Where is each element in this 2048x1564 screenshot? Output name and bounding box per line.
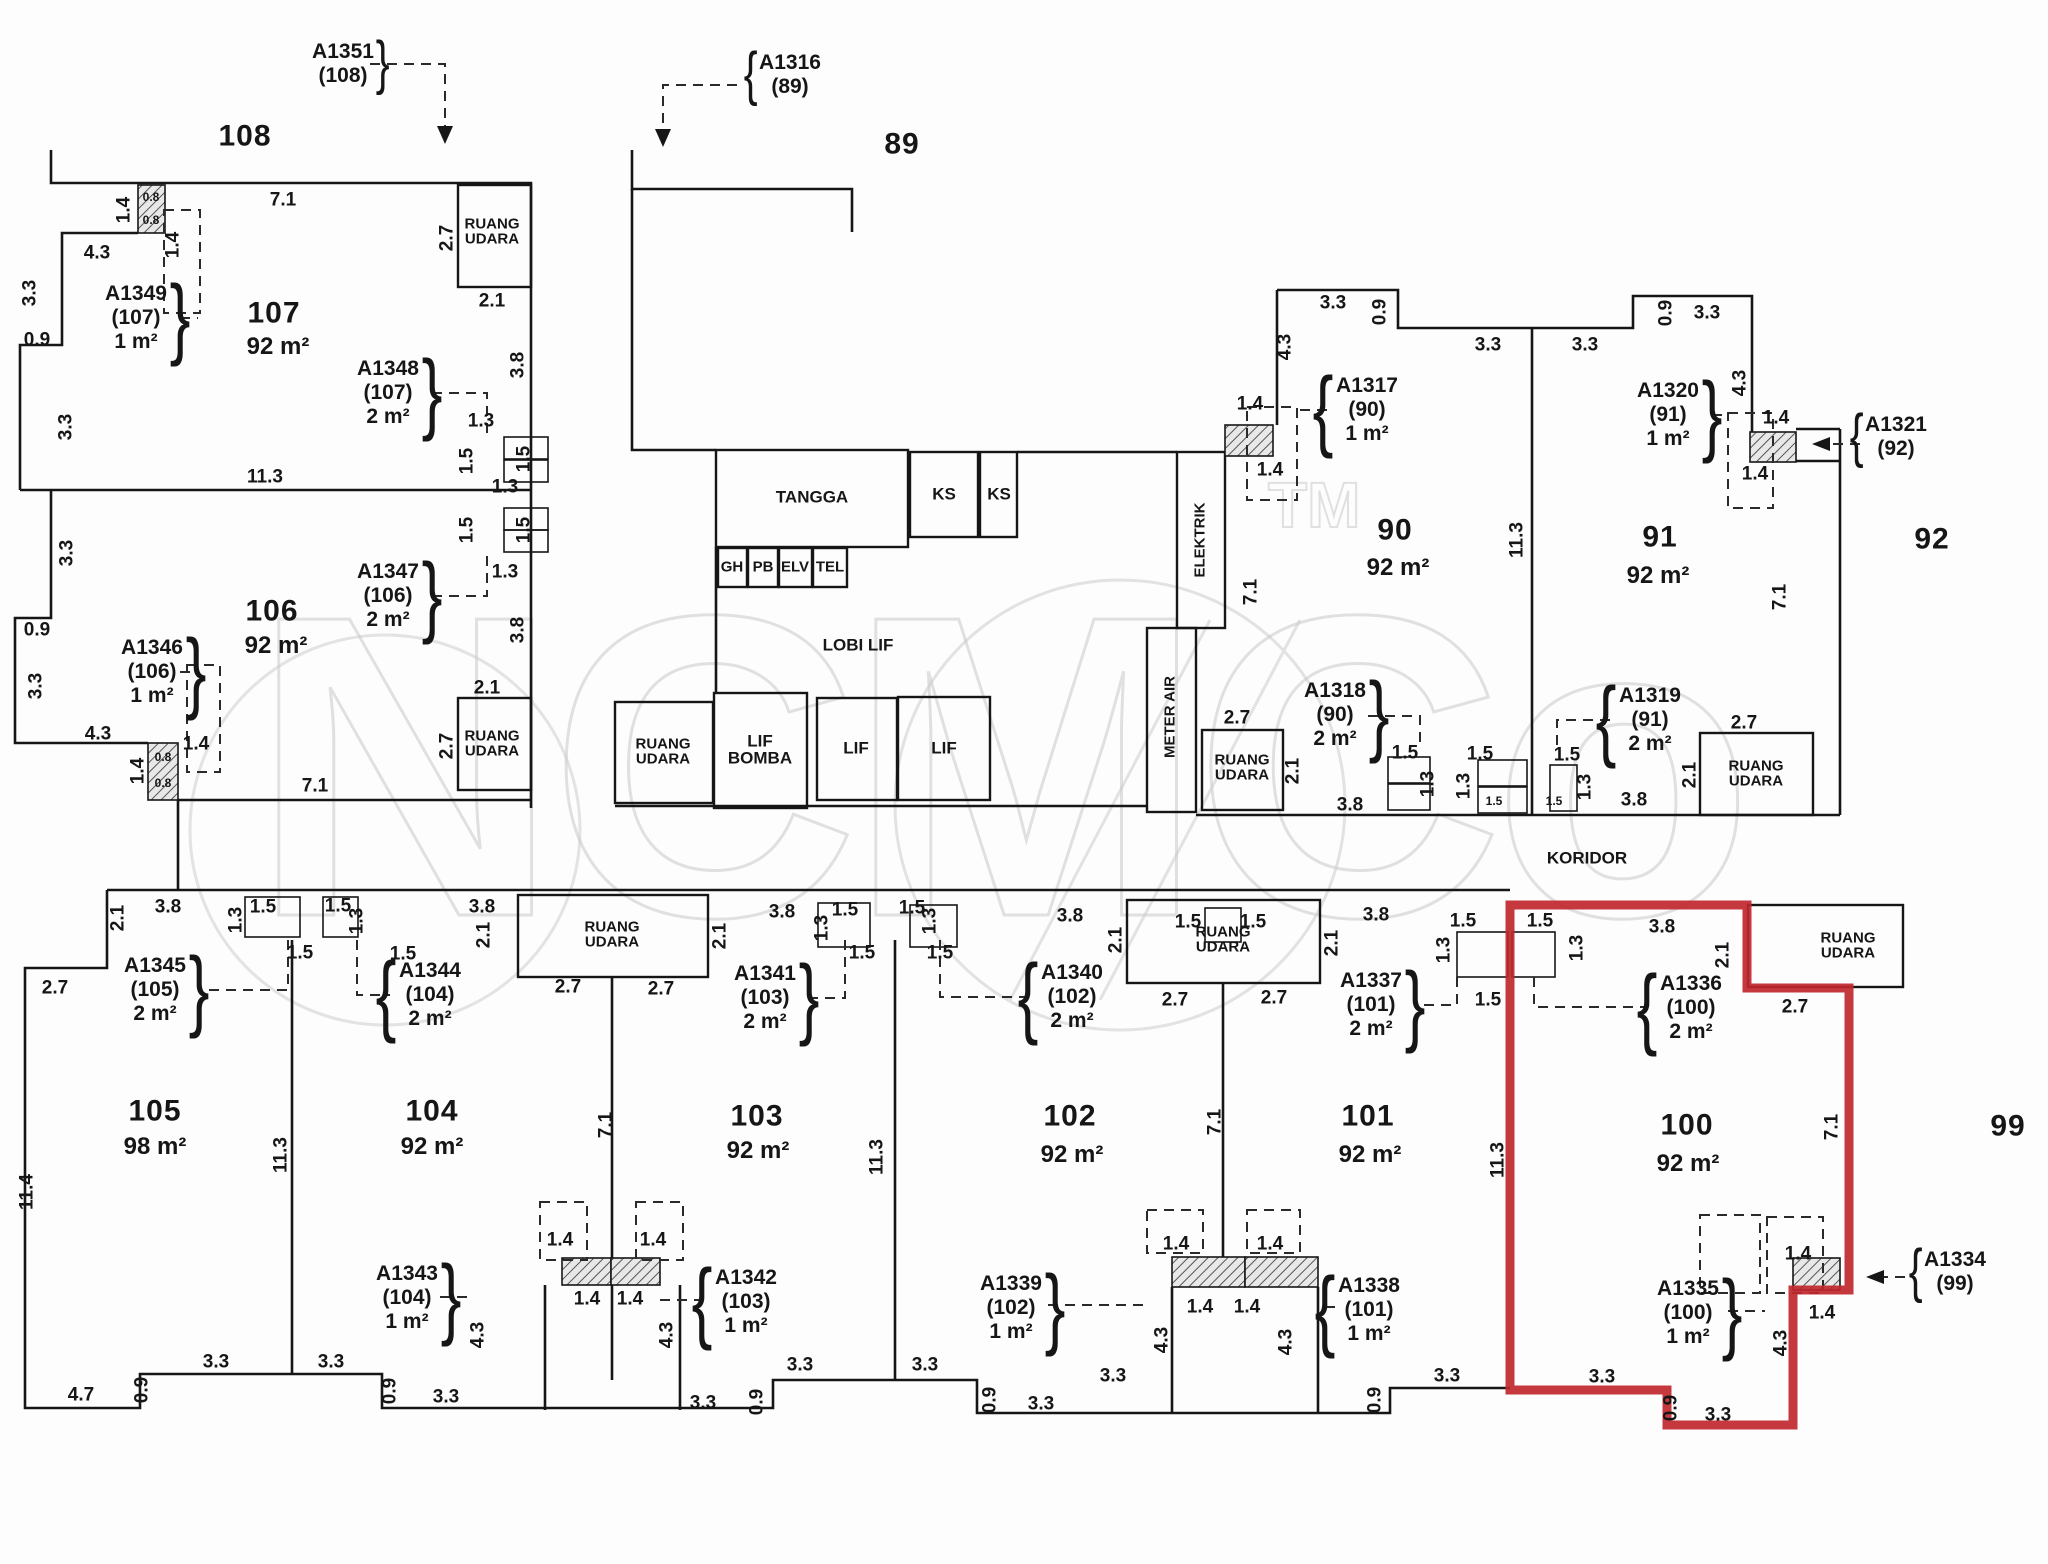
dim-label: 0.8 [143,214,160,226]
dim-label: 1.5 [457,448,476,474]
room-label-ks: KS [932,485,956,502]
dim-label: 1.5 [1175,912,1201,931]
room-label-line: UDARA [1821,945,1875,962]
dim-label: 1.5 [1467,744,1493,763]
callout-A1320: A1320(91)1 m²} [1637,379,1699,451]
dim-label: 1.3 [1575,774,1594,800]
room-label-elektrik: ELEKTRIK [1192,503,1207,578]
dim-label: 0.9 [1661,1395,1680,1421]
room-label-meter-air: METER AIR [1162,676,1177,758]
callout-text: (106) [357,584,419,608]
callout-text: 1 m² [121,684,183,708]
unit-area-107: 92 m² [247,335,310,359]
callout-brace: { [1908,1238,1922,1307]
unit-area-91: 92 m² [1627,564,1690,588]
dim-label: 2.7 [1782,997,1808,1016]
callout-text: (101) [1338,1298,1400,1322]
callout-A1348: A1348(107)2 m²} [357,357,419,429]
dim-label: 3.8 [1363,905,1389,924]
room-label-ruang-udara: RUANGUDARA [1821,931,1876,962]
unit-area-106: 92 m² [245,634,308,658]
room-label-line: PB [753,558,774,575]
dim-label: 11.3 [1507,522,1526,558]
callout-A1340: A1340(102)2 m²{ [1041,961,1103,1033]
dim-label: 0.9 [1656,300,1675,326]
callout-brace: } [376,30,390,99]
dim-label: 1.4 [114,197,133,223]
dim-label: 1.5 [1450,911,1476,930]
callout-brace: } [1405,953,1426,1056]
dim-label: 3.8 [1057,906,1083,925]
callout-text: 2 m² [1660,1020,1722,1044]
callout-A1334: A1334(99){ [1924,1248,1986,1296]
callout-text: (103) [715,1290,777,1314]
callout-A1318: A1318(90)2 m²} [1304,679,1366,751]
dim-label: 3.3 [56,414,75,440]
callout-A1316: A1316(89){ [759,51,821,99]
dim-label: 3.3 [26,673,45,699]
callout-text: (105) [124,978,186,1002]
room-label-lif: LIF [931,739,957,756]
callout-text: 2 m² [357,608,419,632]
room-label-line: UDARA [465,231,519,248]
dim-label: 1.5 [1486,795,1503,807]
callout-A1345: A1345(105)2 m²} [124,954,186,1026]
dim-label: 1.5 [390,944,416,963]
callout-text: (107) [105,306,167,330]
callout-brace: { [1018,945,1039,1048]
callout-text: A1319 [1619,684,1681,708]
dim-label: 3.3 [1434,1366,1460,1385]
dim-label: 1.4 [1187,1297,1213,1316]
unit-label-99: 99 [1990,1112,2025,1143]
callout-A1349: A1349(107)1 m²} [105,282,167,354]
dim-label: 1.5 [832,900,858,919]
unit-area-100: 92 m² [1657,1152,1720,1176]
room-label-elv: ELV [781,559,809,574]
unit-label-102: 102 [1043,1102,1096,1133]
callout-brace: } [799,946,820,1049]
callout-text: (104) [376,1286,438,1310]
callout-text: (107) [357,381,419,405]
callout-text: A1316 [759,51,821,75]
room-label-line: UDARA [585,934,639,951]
room-label-ruang-udara: RUANGUDARA [636,737,691,768]
dim-label: 0.9 [380,1378,399,1404]
dim-label: 1.5 [287,943,313,962]
callout-text: (103) [734,986,796,1010]
room-label-line: LIF [843,738,869,757]
dim-label: 11.4 [17,1174,36,1210]
callout-text: A1317 [1336,374,1398,398]
dim-label: 3.3 [433,1387,459,1406]
callout-text: 2 m² [124,1002,186,1026]
dim-label: 1.5 [514,446,533,472]
callout-text: (100) [1657,1301,1719,1325]
callout-text: (91) [1619,708,1681,732]
dim-label: 2.7 [648,979,674,998]
callout-brace: } [1369,663,1390,766]
dim-label: 0.9 [1365,1387,1384,1413]
callout-text: (91) [1637,403,1699,427]
room-label-line: GH [721,558,744,575]
dim-label: 1.5 [1554,745,1580,764]
dim-label: 1.4 [1785,1244,1811,1263]
room-label-line: ELEKTRIK [1191,503,1208,578]
callout-text: 2 m² [1041,1009,1103,1033]
room-label-line: UDARA [1729,773,1783,790]
unit-label-89: 89 [884,130,919,161]
dim-label: 3.3 [690,1393,716,1412]
dim-label: 4.3 [1276,1329,1295,1355]
callout-text: A1318 [1304,679,1366,703]
callout-brace: } [1045,1256,1066,1359]
callout-text: 1 m² [715,1314,777,1338]
dim-label: 1.4 [547,1230,573,1249]
room-label-line: LIF [747,732,773,751]
dim-label: 4.3 [657,1322,676,1348]
unit-label-101: 101 [1341,1102,1394,1133]
dim-label: 0.8 [155,777,172,789]
dim-label: 1.5 [849,943,875,962]
callout-text: A1320 [1637,379,1699,403]
callout-A1346: A1346(106)1 m²} [121,636,183,708]
dim-label: 4.3 [1730,370,1749,396]
dim-label: 0.9 [24,330,50,349]
callout-brace: { [1849,403,1863,472]
callout-text: (102) [1041,985,1103,1009]
room-label-line: ELV [781,558,809,575]
dim-label: 0.9 [132,1377,151,1403]
callout-text: 2 m² [357,405,419,429]
dim-label: 7.1 [270,190,296,209]
callout-text: 1 m² [105,330,167,354]
dim-label: 3.3 [203,1352,229,1371]
dim-label: 2.7 [1261,988,1287,1007]
callout-brace: { [1313,358,1334,461]
dim-label: 4.3 [1275,334,1294,360]
callout-text: A1345 [124,954,186,978]
callout-text: (106) [121,660,183,684]
dim-label: 3.3 [1100,1366,1126,1385]
callout-brace: } [422,341,443,444]
room-label-tangga: TANGGA [776,488,848,505]
dim-label: 4.3 [1152,1327,1171,1353]
callout-text: A1335 [1657,1277,1719,1301]
floor-plan: NCMCo TM [0,0,2048,1564]
room-label-line: LIF [931,738,957,757]
dim-label: 7.1 [1241,579,1260,605]
dim-label: 2.7 [1224,708,1250,727]
room-label-gh: GH [721,559,744,574]
callout-text: 1 m² [980,1320,1042,1344]
room-label-lif-bomba: LIFBOMBA [728,733,792,768]
dim-label: 2.1 [1283,758,1302,784]
room-label-lobi-lif: LOBI LIF [823,636,894,653]
dim-label: 1.4 [640,1230,666,1249]
dim-label: 3.3 [1572,335,1598,354]
callout-text: 1 m² [376,1310,438,1334]
room-label-lif: LIF [843,739,869,756]
callout-A1338: A1338(101)1 m²{ [1338,1274,1400,1346]
callout-A1344: A1344(104)2 m²{ [399,959,461,1031]
callout-A1321: A1321(92){ [1865,413,1927,461]
unit-label-105: 105 [128,1097,181,1128]
unit-area-103: 92 m² [727,1139,790,1163]
callout-brace: { [1637,956,1658,1059]
dim-label: 2.1 [474,678,500,697]
callout-brace: } [1722,1261,1743,1364]
dim-label: 2.7 [42,978,68,997]
dim-label: 1.3 [1567,935,1586,961]
dim-label: 1.4 [1257,1234,1283,1253]
room-label-ruang-udara: RUANGUDARA [1729,759,1784,790]
callout-A1317: A1317(90)1 m²{ [1336,374,1398,446]
dim-label: 3.3 [912,1355,938,1374]
callout-A1347: A1347(106)2 m²} [357,560,419,632]
dim-label: 7.1 [1770,584,1789,610]
callout-brace: } [189,938,210,1041]
room-label-tel: TEL [816,559,844,574]
dim-label: 0.9 [980,1387,999,1413]
dim-label: 1.4 [1763,408,1789,427]
callout-A1341: A1341(103)2 m²} [734,962,796,1034]
dim-label: 1.5 [1546,795,1563,807]
callout-text: 2 m² [399,1007,461,1031]
dim-label: 0.8 [143,191,160,203]
room-label-ruang-udara: RUANGUDARA [465,729,520,760]
dim-label: 1.3 [812,915,831,941]
callout-A1339: A1339(102)1 m²} [980,1272,1042,1344]
dim-label: 7.1 [596,1112,615,1138]
dim-label: 1.4 [1742,464,1768,483]
unit-label-92: 92 [1914,525,1949,556]
dim-label: 1.3 [347,908,366,934]
dim-label: 3.8 [508,352,527,378]
dim-label: 2.1 [1106,927,1125,953]
dim-label: 3.3 [1028,1394,1054,1413]
dim-label: 2.7 [437,225,456,251]
room-label-ks: KS [987,485,1011,502]
callout-text: A1346 [121,636,183,660]
callout-text: 2 m² [734,1010,796,1034]
room-label-line: TEL [816,558,844,575]
dim-label: 1.3 [1454,773,1473,799]
dim-label: 2.1 [479,291,505,310]
dim-label: 1.4 [183,734,209,753]
dim-label: 0.9 [24,620,50,639]
dim-label: 1.3 [226,907,245,933]
dim-label: 1.4 [617,1289,643,1308]
callout-text: A1337 [1340,969,1402,993]
dim-label: 1.5 [250,897,276,916]
dim-label: 3.8 [769,902,795,921]
callout-A1335: A1335(100)1 m²} [1657,1277,1719,1349]
dim-label: 2.7 [1162,990,1188,1009]
dim-label: 3.8 [1337,795,1363,814]
callout-text: (99) [1924,1272,1986,1296]
dim-label: 4.3 [468,1322,487,1348]
callout-A1336: A1336(100)2 m²{ [1660,972,1722,1044]
dim-label: 1.5 [927,943,953,962]
dim-label: 2.7 [555,977,581,996]
room-label-line: KORIDOR [1547,848,1627,867]
dim-label: 1.4 [1237,394,1263,413]
callout-A1337: A1337(101)2 m²} [1340,969,1402,1041]
dim-label: 2.1 [710,923,729,949]
room-label-line: UDARA [465,743,519,760]
dim-label: 2.1 [474,922,493,948]
dim-label: 1.5 [457,517,476,543]
callout-text: (89) [759,75,821,99]
callout-text: A1340 [1041,961,1103,985]
callout-text: 1 m² [1338,1322,1400,1346]
dim-label: 2.1 [1713,942,1732,968]
callout-text: 1 m² [1637,427,1699,451]
dim-label: 1.5 [1527,911,1553,930]
dim-label: 4.3 [84,243,110,262]
callout-text: A1321 [1865,413,1927,437]
unit-area-101: 92 m² [1339,1143,1402,1167]
callout-text: (100) [1660,996,1722,1020]
callout-A1319: A1319(91)2 m²{ [1619,684,1681,756]
unit-area-104: 92 m² [401,1135,464,1159]
dim-label: 0.9 [747,1389,766,1415]
callout-brace: } [441,1246,462,1349]
callout-text: 2 m² [1340,1017,1402,1041]
unit-label-103: 103 [730,1102,783,1133]
dim-label: 1.4 [1809,1303,1835,1322]
room-label-line: METER AIR [1161,676,1178,758]
callout-text: 2 m² [1619,732,1681,756]
dim-label: 4.3 [85,724,111,743]
room-label-koridor: KORIDOR [1547,849,1627,866]
callout-text: (102) [980,1296,1042,1320]
callout-text: 1 m² [1336,422,1398,446]
dim-label: 1.3 [492,477,518,496]
callout-text: A1339 [980,1272,1042,1296]
room-label-line: KS [987,484,1011,503]
dim-label: 1.3 [468,411,494,430]
callout-brace: } [1702,363,1723,466]
callout-text: (92) [1865,437,1927,461]
callout-text: (108) [312,64,374,88]
dim-label: 2.7 [437,733,456,759]
dim-label: 1.3 [1418,771,1437,797]
dim-label: 1.4 [1234,1297,1260,1316]
dim-label: 3.8 [1621,790,1647,809]
dim-label: 1.4 [574,1289,600,1308]
callout-text: A1349 [105,282,167,306]
callout-brace: { [1315,1258,1336,1361]
callout-text: (90) [1304,703,1366,727]
dim-label: 1.5 [1240,912,1266,931]
unit-label-108: 108 [218,122,271,153]
unit-label-104: 104 [405,1097,458,1128]
dim-label: 11.3 [247,467,283,486]
dim-label: 3.3 [1475,335,1501,354]
callout-text: A1341 [734,962,796,986]
dim-label: 7.1 [302,776,328,795]
dim-label: 3.3 [318,1352,344,1371]
dim-label: 3.3 [57,540,76,566]
room-label-line: UDARA [636,751,690,768]
callout-A1342: A1342(103)1 m²{ [715,1266,777,1338]
dim-label: 3.3 [20,280,39,306]
callout-text: A1347 [357,560,419,584]
callout-brace: { [1596,668,1617,771]
room-label-ruang-udara: RUANGUDARA [465,217,520,248]
dim-label: 1.3 [492,562,518,581]
dim-label: 1.5 [514,517,533,543]
room-label-line: LOBI LIF [823,635,894,654]
dim-label: 1.3 [1434,937,1453,963]
dim-label: 2.1 [1680,762,1699,788]
unit-label-91: 91 [1642,523,1677,554]
callout-brace: { [692,1250,713,1353]
callout-text: (90) [1336,398,1398,422]
dim-label: 1.4 [1163,1234,1189,1253]
dim-label: 4.3 [1771,1330,1790,1356]
unit-label-90: 90 [1377,516,1412,547]
callout-text: A1338 [1338,1274,1400,1298]
callout-text: A1336 [1660,972,1722,996]
dim-label: 7.1 [1205,1109,1224,1135]
dim-label: 1.4 [1257,460,1283,479]
room-label-line: KS [932,484,956,503]
dim-label: 4.7 [68,1385,94,1404]
dim-label: 1.4 [128,758,147,784]
callout-A1351: A1351(108)} [312,40,374,88]
callout-text: A1343 [376,1262,438,1286]
unit-area-105: 98 m² [124,1135,187,1159]
callout-text: A1351 [312,40,374,64]
dim-label: 11.3 [1488,1142,1507,1178]
room-label-line: BOMBA [728,749,792,768]
callout-text: (101) [1340,993,1402,1017]
dim-label: 1.5 [1475,990,1501,1009]
unit-label-106: 106 [245,597,298,628]
dim-label: 3.8 [155,897,181,916]
dim-label: 3.8 [469,897,495,916]
dim-label: 3.3 [1694,303,1720,322]
dim-label: 2.1 [1322,930,1341,956]
dim-label: 3.3 [1589,1367,1615,1386]
dim-label: 1.5 [1392,743,1418,762]
callout-text: A1334 [1924,1248,1986,1272]
dim-label: 7.1 [1822,1114,1841,1140]
room-label-pb: PB [753,559,774,574]
room-label-ruang-udara: RUANGUDARA [585,920,640,951]
dim-label: 2.7 [1731,713,1757,732]
unit-area-90: 92 m² [1367,556,1430,580]
dim-label: 3.8 [1649,917,1675,936]
callout-brace: } [186,620,207,723]
room-label-line: TANGGA [776,487,848,506]
dim-label: 3.8 [508,617,527,643]
room-label-line: UDARA [1215,767,1269,784]
room-label-ruang-udara: RUANGUDARA [1215,753,1270,784]
callout-text: A1342 [715,1266,777,1290]
callout-brace: { [743,41,757,110]
unit-label-100: 100 [1660,1111,1713,1142]
room-label-line: UDARA [1196,939,1250,956]
unit-area-102: 92 m² [1041,1143,1104,1167]
callout-text: 1 m² [1657,1325,1719,1349]
dim-label: 1.3 [920,908,939,934]
callout-brace: } [422,544,443,647]
dim-label: 3.3 [787,1355,813,1374]
